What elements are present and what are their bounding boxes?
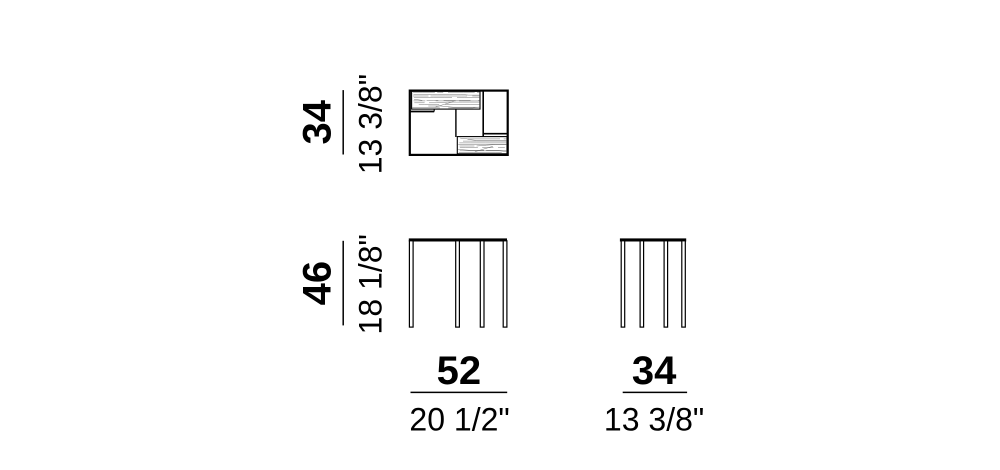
svg-text:34: 34 (632, 349, 677, 393)
svg-text:20 1/2": 20 1/2" (409, 401, 509, 437)
svg-text:46: 46 (296, 261, 340, 306)
svg-text:18 1/8": 18 1/8" (353, 234, 389, 334)
svg-text:13 3/8": 13 3/8" (604, 401, 704, 437)
svg-text:34: 34 (296, 99, 340, 144)
svg-text:13 3/8": 13 3/8" (353, 74, 389, 174)
svg-text:52: 52 (437, 349, 482, 393)
